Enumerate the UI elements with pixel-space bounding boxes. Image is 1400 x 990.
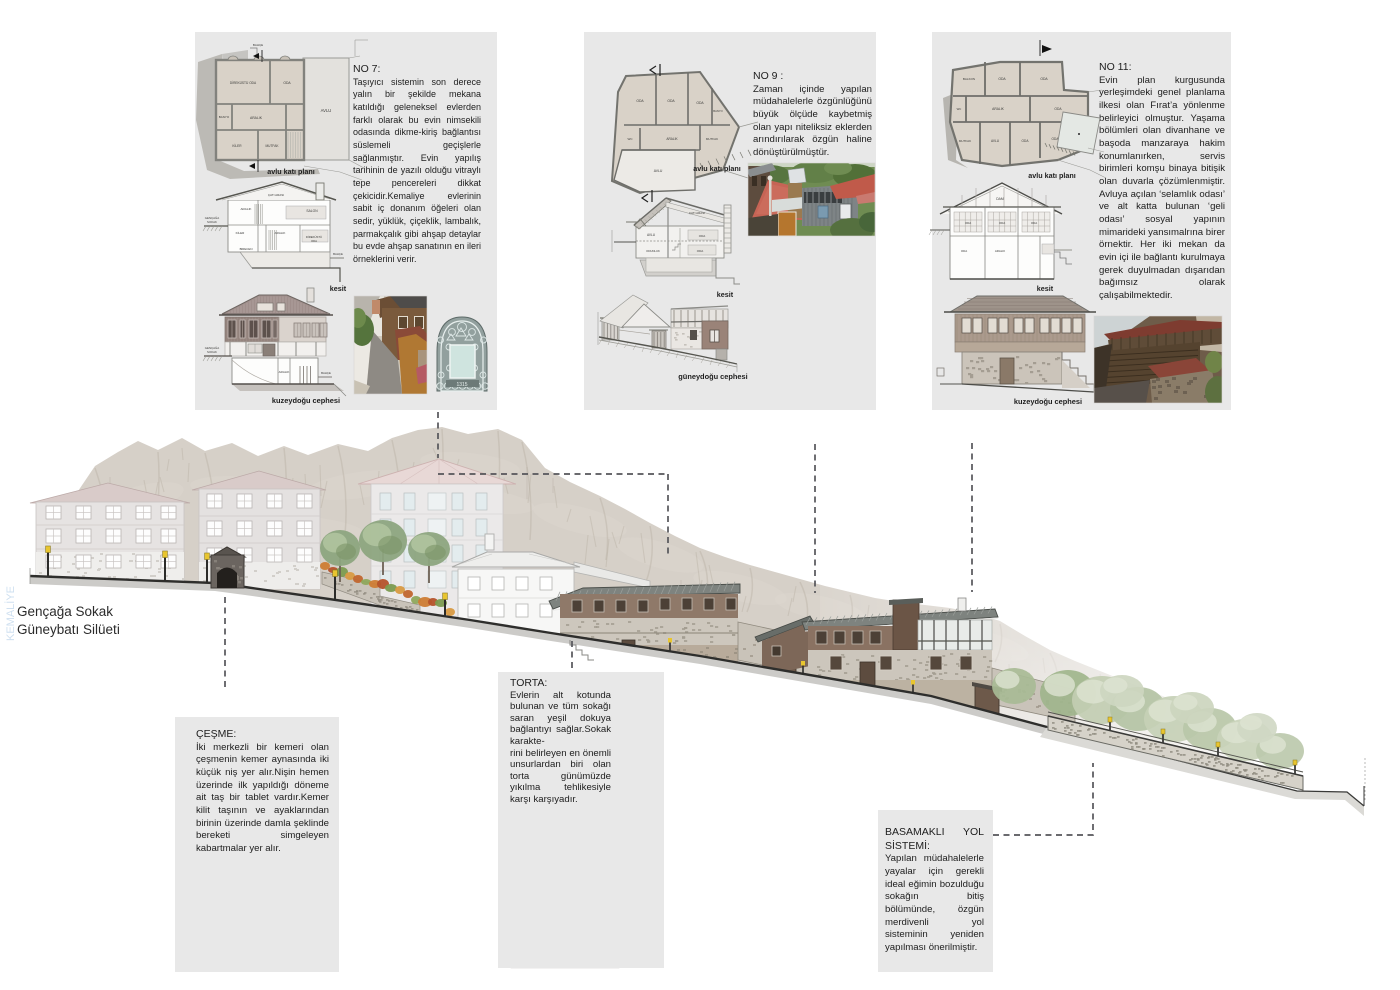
svg-text:avlu katı planı: avlu katı planı: [693, 164, 741, 173]
svg-text:kesit: kesit: [717, 290, 734, 299]
svg-text:AVLU: AVLU: [321, 108, 332, 113]
svg-text:BAHÇE: BAHÇE: [253, 43, 263, 47]
svg-text:ODA: ODA: [667, 99, 675, 103]
svg-text:1315: 1315: [456, 382, 467, 388]
svg-text:ARALIK: ARALIK: [250, 116, 263, 120]
svg-text:kesit: kesit: [330, 284, 347, 293]
svg-text:MUTFAK: MUTFAK: [266, 144, 280, 148]
svg-text:ARALIK: ARALIK: [666, 137, 678, 141]
svg-text:WC: WC: [628, 137, 634, 141]
svg-text:DAM: DAM: [996, 197, 1004, 201]
svg-text:ODA: ODA: [697, 249, 704, 253]
svg-text:ARALIK: ARALIK: [275, 231, 286, 235]
svg-text:ODA: ODA: [699, 234, 706, 238]
svg-text:SALON: SALON: [306, 209, 318, 213]
svg-text:ODA: ODA: [1040, 77, 1048, 81]
svg-text:güneydoğu cephesi: güneydoğu cephesi: [678, 372, 747, 381]
svg-text:ODA: ODA: [965, 221, 971, 225]
svg-text:ARALIK: ARALIK: [992, 107, 1005, 111]
svg-text:kuzeydoğu cephesi: kuzeydoğu cephesi: [1014, 397, 1082, 406]
svg-text:BALKON: BALKON: [963, 77, 975, 81]
svg-text:ODA: ODA: [636, 99, 644, 103]
svg-text:MUTFAK: MUTFAK: [959, 139, 971, 143]
svg-text:ODA: ODA: [961, 249, 967, 253]
svg-text:BANYO: BANYO: [713, 109, 722, 113]
svg-text:ODA: ODA: [1054, 107, 1062, 111]
svg-text:BAHÇE: BAHÇE: [321, 371, 331, 375]
svg-text:ODA: ODA: [696, 101, 704, 105]
svg-text:SOKAK: SOKAK: [207, 350, 217, 354]
svg-text:ODA: ODA: [1031, 221, 1037, 225]
svg-text:AVLU: AVLU: [991, 139, 1000, 143]
svg-text:SOKAK: SOKAK: [207, 220, 217, 224]
svg-text:ÇATI ARASI: ÇATI ARASI: [689, 211, 705, 215]
svg-text:KİLER: KİLER: [232, 143, 242, 148]
svg-text:AVLU: AVLU: [647, 233, 656, 237]
svg-text:kuzeydoğu cephesi: kuzeydoğu cephesi: [272, 396, 340, 405]
svg-text:avlu katı planı: avlu katı planı: [1028, 171, 1076, 180]
svg-text:BIRECEN: BIRECEN: [240, 247, 253, 251]
svg-text:avlu katı planı: avlu katı planı: [267, 167, 315, 176]
svg-text:BAHÇE: BAHÇE: [333, 252, 343, 256]
svg-text:ARALIK: ARALIK: [279, 370, 290, 374]
svg-text:ODA: ODA: [999, 221, 1005, 225]
svg-text:KİLER: KİLER: [236, 230, 246, 235]
svg-text:ODA: ODA: [283, 81, 291, 85]
svg-text:BANYO: BANYO: [219, 115, 230, 119]
svg-text:ÇATI ARASI: ÇATI ARASI: [268, 193, 284, 197]
svg-text:AVLU: AVLU: [654, 169, 663, 173]
svg-text:kesit: kesit: [1037, 284, 1054, 293]
svg-text:ODA: ODA: [1022, 139, 1030, 143]
svg-text:ODA: ODA: [998, 77, 1006, 81]
svg-text:ODA: ODA: [311, 239, 317, 243]
svg-text:ARALIK: ARALIK: [995, 249, 1005, 253]
svg-text:ARALIK: ARALIK: [240, 207, 252, 211]
svg-text:MUTFAK: MUTFAK: [706, 137, 718, 141]
svg-text:ODUNLUK: ODUNLUK: [646, 249, 660, 253]
svg-text:WC: WC: [957, 107, 962, 111]
svg-text:DİREKÜSTÜ ODA: DİREKÜSTÜ ODA: [230, 80, 257, 85]
